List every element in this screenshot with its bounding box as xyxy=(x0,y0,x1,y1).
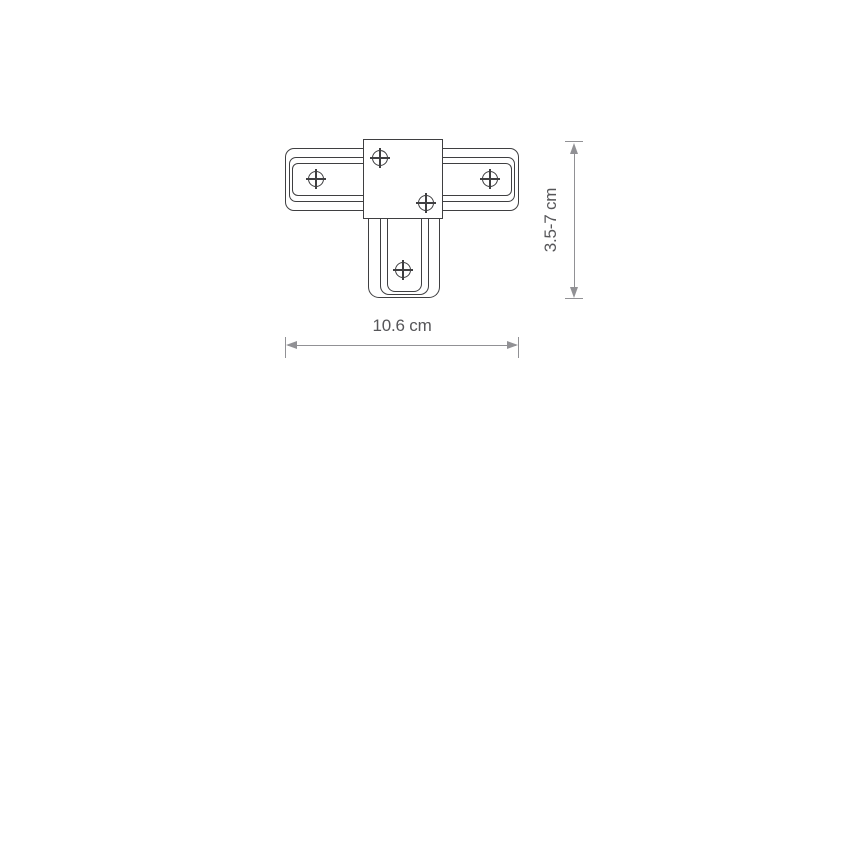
screw-cross xyxy=(489,169,491,189)
height-dimension-label: 3.5-7 cm xyxy=(541,150,561,290)
screw-cross xyxy=(402,260,404,280)
width-dimension-label: 10.6 cm xyxy=(332,316,472,336)
screw-cross xyxy=(315,169,317,189)
technical-drawing-canvas: 10.6 cm 3.5-7 cm xyxy=(0,0,868,868)
screw-cross xyxy=(425,193,427,213)
arrowhead-up-icon xyxy=(570,143,578,154)
screw-cross xyxy=(379,148,381,168)
height-dimension-extension-line-top xyxy=(565,141,583,142)
screw-icon xyxy=(370,148,390,168)
arrowhead-down-icon xyxy=(570,287,578,298)
arrowhead-right-icon xyxy=(507,341,518,349)
width-dimension-line xyxy=(288,345,516,346)
screw-icon xyxy=(306,169,326,189)
screw-icon xyxy=(393,260,413,280)
screw-icon xyxy=(416,193,436,213)
height-dimension-line xyxy=(574,146,575,294)
height-dimension-extension-line-bottom xyxy=(565,298,583,299)
width-dimension-extension-line-right xyxy=(518,337,519,358)
arrowhead-left-icon xyxy=(286,341,297,349)
branch-arm-inner-profile xyxy=(387,219,422,292)
screw-icon xyxy=(480,169,500,189)
